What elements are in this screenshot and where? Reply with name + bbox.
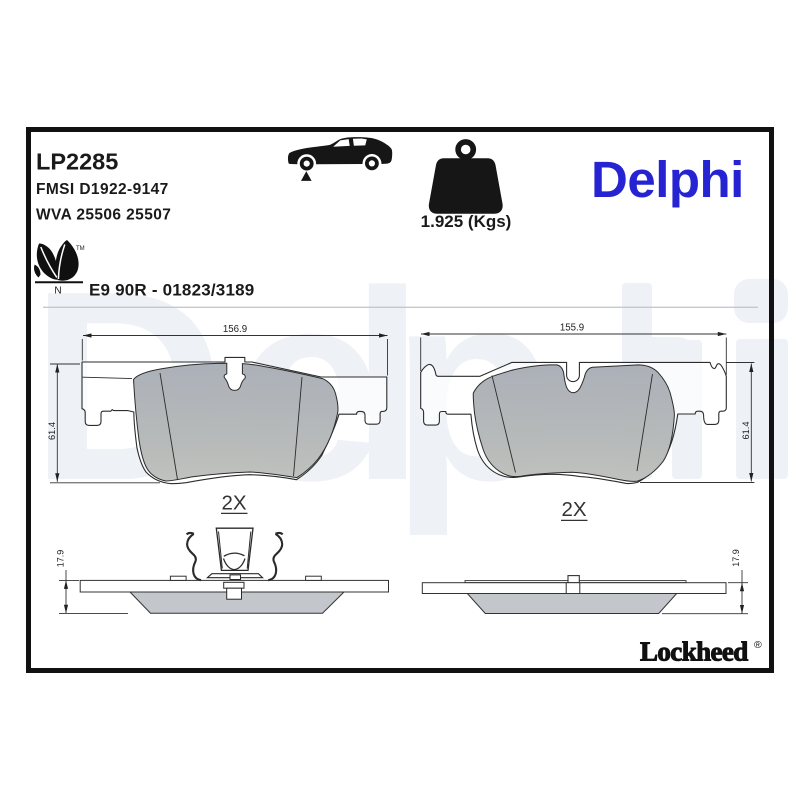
svg-text:TM: TM [76, 246, 85, 252]
svg-text:WVA 25506 25507: WVA 25506 25507 [36, 207, 171, 224]
svg-text:155.9: 155.9 [560, 323, 584, 334]
svg-text:61.4: 61.4 [47, 422, 57, 440]
svg-text:N: N [54, 286, 61, 297]
svg-text:E9 90R - 01823/3189: E9 90R - 01823/3189 [89, 281, 254, 300]
svg-text:Lockheed: Lockheed [640, 637, 748, 667]
svg-text:®: ® [754, 639, 762, 651]
svg-text:17.9: 17.9 [731, 549, 741, 567]
svg-text:Delphi: Delphi [591, 151, 744, 208]
svg-text:LP2285: LP2285 [36, 149, 118, 175]
svg-text:1.925 (Kgs): 1.925 (Kgs) [421, 212, 512, 231]
svg-text:2X: 2X [562, 498, 587, 521]
svg-text:FMSI D1922-9147: FMSI D1922-9147 [36, 181, 169, 198]
svg-text:156.9: 156.9 [223, 324, 247, 335]
svg-text:61.4: 61.4 [741, 422, 751, 440]
svg-text:2X: 2X [222, 492, 247, 515]
svg-text:17.9: 17.9 [55, 550, 65, 568]
